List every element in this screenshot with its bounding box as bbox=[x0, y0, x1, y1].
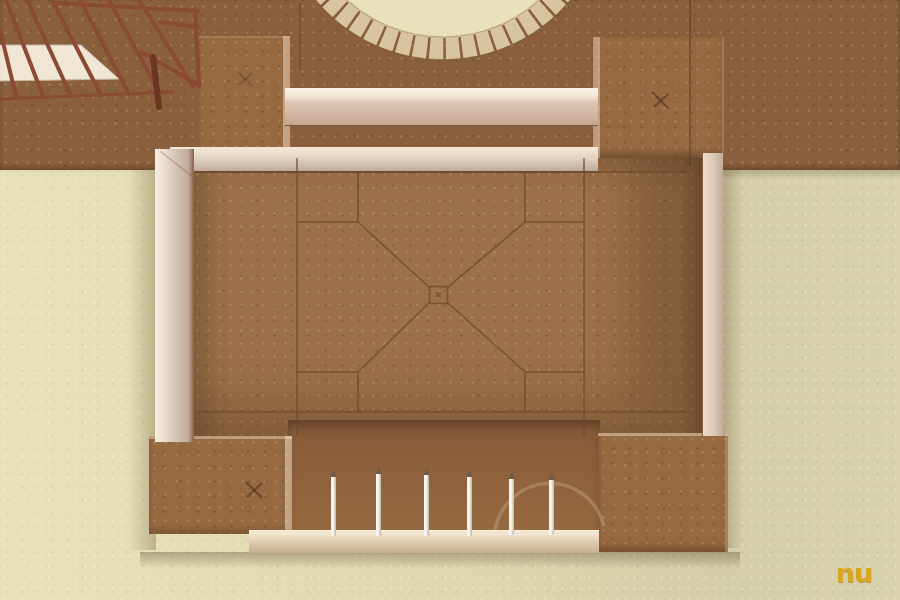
corner-tower-bottom-left bbox=[149, 436, 292, 534]
balsa-beam bbox=[285, 88, 598, 126]
balsa-beam-face bbox=[285, 101, 598, 126]
balsa-beam-highlight bbox=[285, 88, 598, 101]
white-column bbox=[424, 474, 429, 536]
white-column bbox=[376, 473, 381, 536]
balsa-wall-left bbox=[155, 149, 194, 442]
white-column bbox=[331, 476, 336, 536]
balsa-wall-top bbox=[170, 147, 598, 173]
balsa-wall-right bbox=[702, 153, 723, 436]
white-column bbox=[549, 479, 554, 535]
mdf-backboard bbox=[0, 0, 900, 170]
watermark-logo: nu bbox=[836, 561, 898, 589]
right-wall-inner-shadow bbox=[680, 158, 702, 434]
corner-tower-top-left bbox=[197, 36, 290, 157]
white-column bbox=[509, 478, 514, 535]
courtyard-floor bbox=[192, 155, 703, 438]
architectural-model-photo: nu bbox=[0, 0, 900, 600]
white-column bbox=[467, 476, 472, 536]
corner-tower-bottom-right bbox=[598, 433, 728, 552]
cast-shadow-bottom bbox=[140, 552, 740, 569]
corner-tower-top-right bbox=[593, 37, 724, 158]
